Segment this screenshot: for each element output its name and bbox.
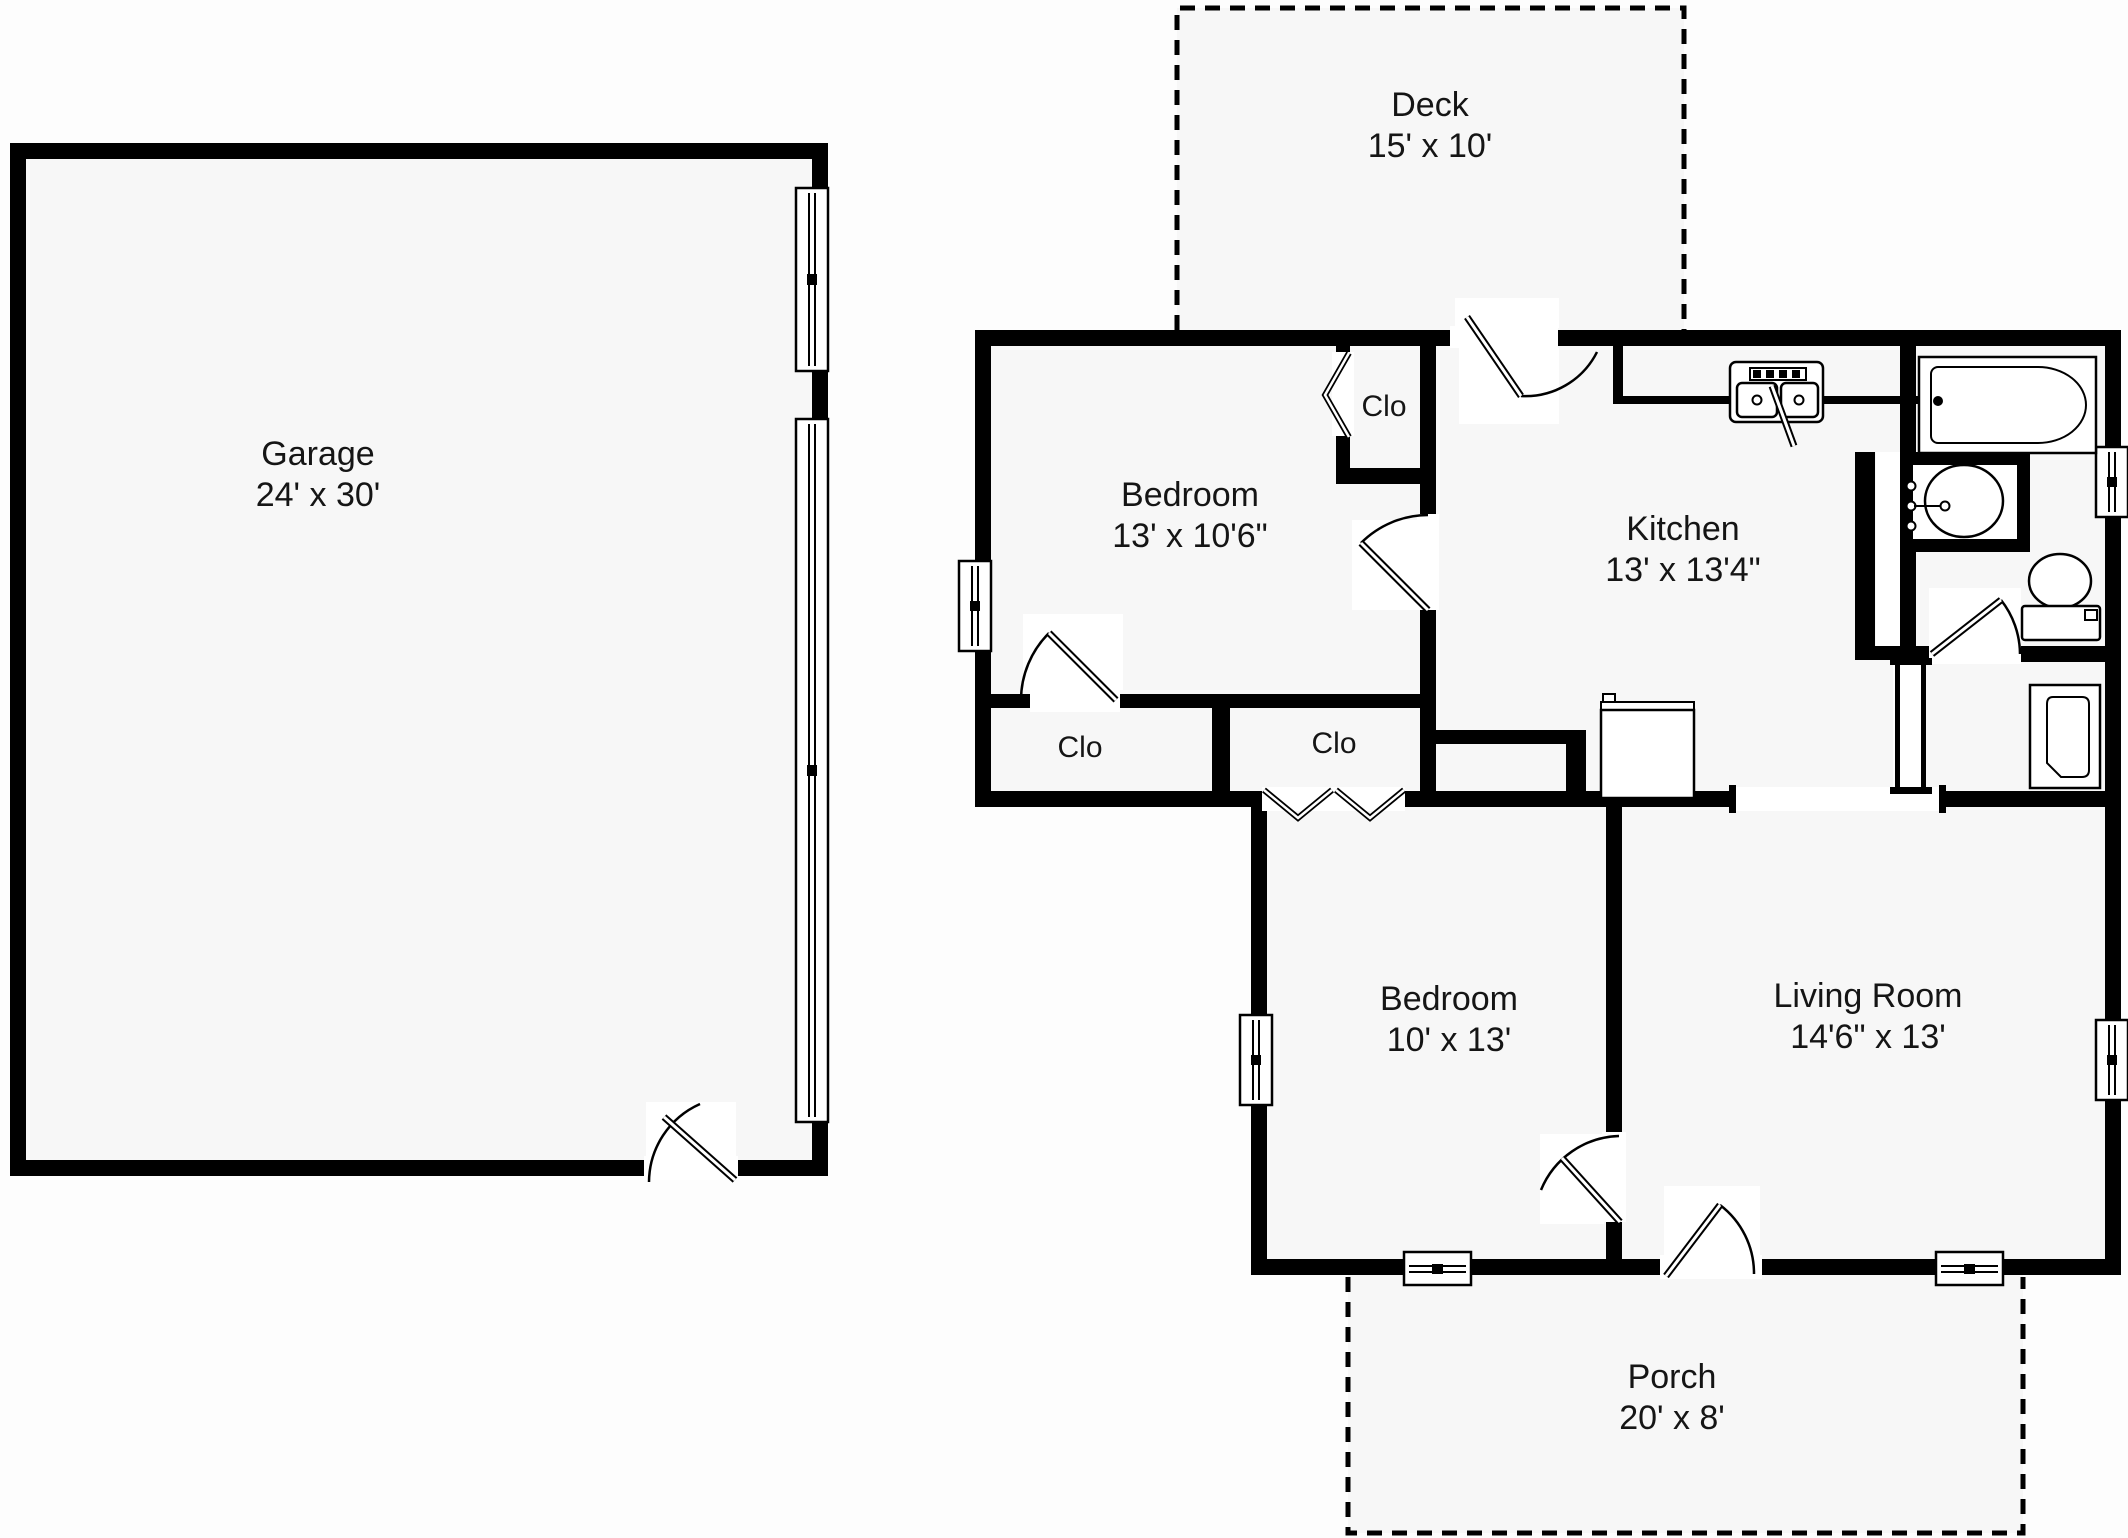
opening-jamb-left — [1729, 785, 1736, 813]
garage-floor — [26, 159, 812, 1160]
chase-slot — [1876, 452, 1900, 646]
bathroom-window — [2096, 447, 2128, 517]
bathroom-sink — [1925, 465, 2003, 537]
stair-nook-wall-right — [1566, 744, 1586, 791]
bathroom-wall-bottom — [2019, 646, 2105, 662]
nook-opening-jamb-top — [1890, 658, 1932, 665]
bedroom1-door — [1352, 515, 1428, 610]
nook-opening-jamb-bottom — [1890, 787, 1932, 794]
chase-wall-left — [1855, 452, 1875, 660]
kitchen-counter-edge-left — [1613, 346, 1623, 404]
bedroom2-front-window — [1404, 1252, 1471, 1285]
floor-plan-drawing — [0, 0, 2128, 1538]
washer — [2030, 685, 2100, 788]
garage-wall-left — [10, 143, 26, 1176]
garage-window — [796, 419, 828, 1122]
tub-faucet — [1933, 396, 1943, 406]
bathtub — [1919, 357, 2096, 453]
deck-floor — [1177, 8, 1684, 330]
bedroom1-closet-wall-bottom — [1336, 468, 1436, 484]
vanity-faucet — [1941, 502, 1950, 511]
closet-door — [1021, 614, 1123, 700]
closet-divider-wall — [1212, 694, 1230, 807]
nook-opening-side — [1896, 666, 1899, 786]
stair-nook-wall-top — [1432, 730, 1586, 744]
bedroom2-window — [1240, 1015, 1272, 1105]
garage-wall-top — [10, 143, 828, 159]
nook-opening-side — [1922, 666, 1925, 786]
bedroom1-door-opening — [1417, 514, 1439, 610]
porch-floor — [1348, 1275, 2023, 1533]
garage-window — [796, 188, 828, 371]
chase-wall-bottom — [1855, 646, 1929, 660]
refrigerator — [1601, 694, 1694, 798]
floor-plan: Garage 24' x 30' Deck 15' x 10' Bedroom … — [0, 0, 2128, 1538]
opening-jamb-right — [1939, 785, 1946, 813]
floor-areas — [26, 8, 2105, 1533]
deck-door-opening — [1450, 326, 1558, 348]
living-room-front-window — [1936, 1252, 2003, 1285]
bathroom-vanity — [1900, 452, 2030, 552]
main-interior-wall — [975, 791, 2121, 807]
bedroom1-window — [959, 561, 991, 651]
living-room-window — [2096, 1020, 2128, 1100]
